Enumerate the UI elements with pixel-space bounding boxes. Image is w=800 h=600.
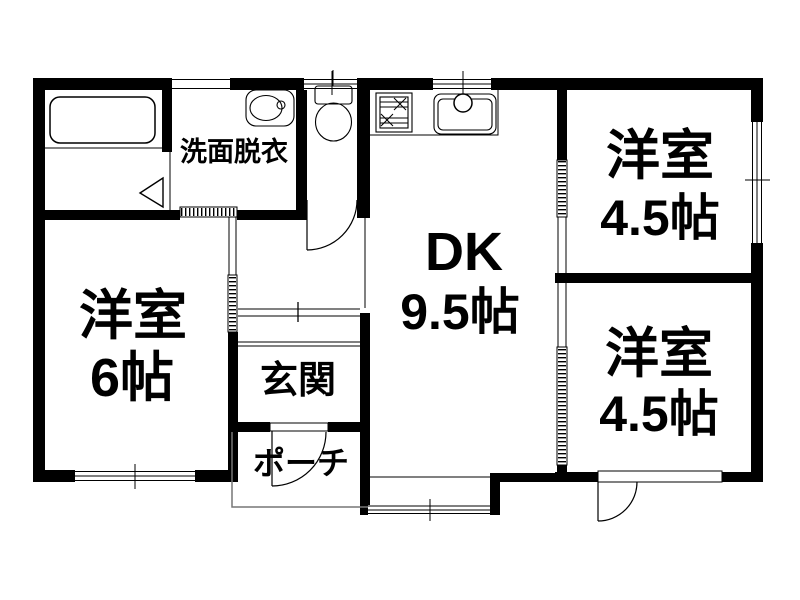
bedroom-left-label: 洋室 xyxy=(79,286,187,346)
washroom-label: 洗面脱衣 xyxy=(180,136,288,167)
window-washroom xyxy=(172,78,230,90)
bedroom-bottom-right-size: 4.5帖 xyxy=(599,386,719,442)
window-dk-south xyxy=(368,499,490,521)
vanity-sink-icon xyxy=(246,90,294,126)
window-kitchen xyxy=(433,71,491,95)
bedroom-bottom-right-door xyxy=(598,471,722,521)
floorplan: 洗面脱衣 DK 9.5帖 洋室 4.5帖 洋室 4.5帖 洋室 6帖 玄関 ポー… xyxy=(0,0,800,600)
window-bedroom-left xyxy=(75,464,195,489)
floorplan-canvas: 洗面脱衣 DK 9.5帖 洋室 4.5帖 洋室 4.5帖 洋室 6帖 玄関 ポー… xyxy=(0,0,800,600)
window-toilet xyxy=(304,71,357,95)
kitchen-sink-icon xyxy=(434,94,496,134)
thin-partitions xyxy=(229,217,566,477)
window-bedroom-top-right xyxy=(745,122,770,243)
bedroom-top-right-label: 洋室 xyxy=(606,126,714,186)
bedroom-left-size: 6帖 xyxy=(90,348,174,408)
toilet-door xyxy=(307,200,357,250)
room-labels: 洗面脱衣 DK 9.5帖 洋室 4.5帖 洋室 4.5帖 洋室 6帖 玄関 ポー… xyxy=(79,126,720,481)
bedroom-bottom-right-label: 洋室 xyxy=(605,324,713,384)
bath-folding-door xyxy=(140,152,170,210)
porch-label: ポーチ xyxy=(253,445,349,481)
entrance-label: 玄関 xyxy=(260,360,336,402)
dk-label: DK xyxy=(425,222,503,282)
bathtub-icon xyxy=(45,97,162,148)
dk-size: 9.5帖 xyxy=(400,284,520,340)
gas-stove-icon xyxy=(376,93,412,132)
bedroom-top-right-size: 4.5帖 xyxy=(600,190,720,246)
